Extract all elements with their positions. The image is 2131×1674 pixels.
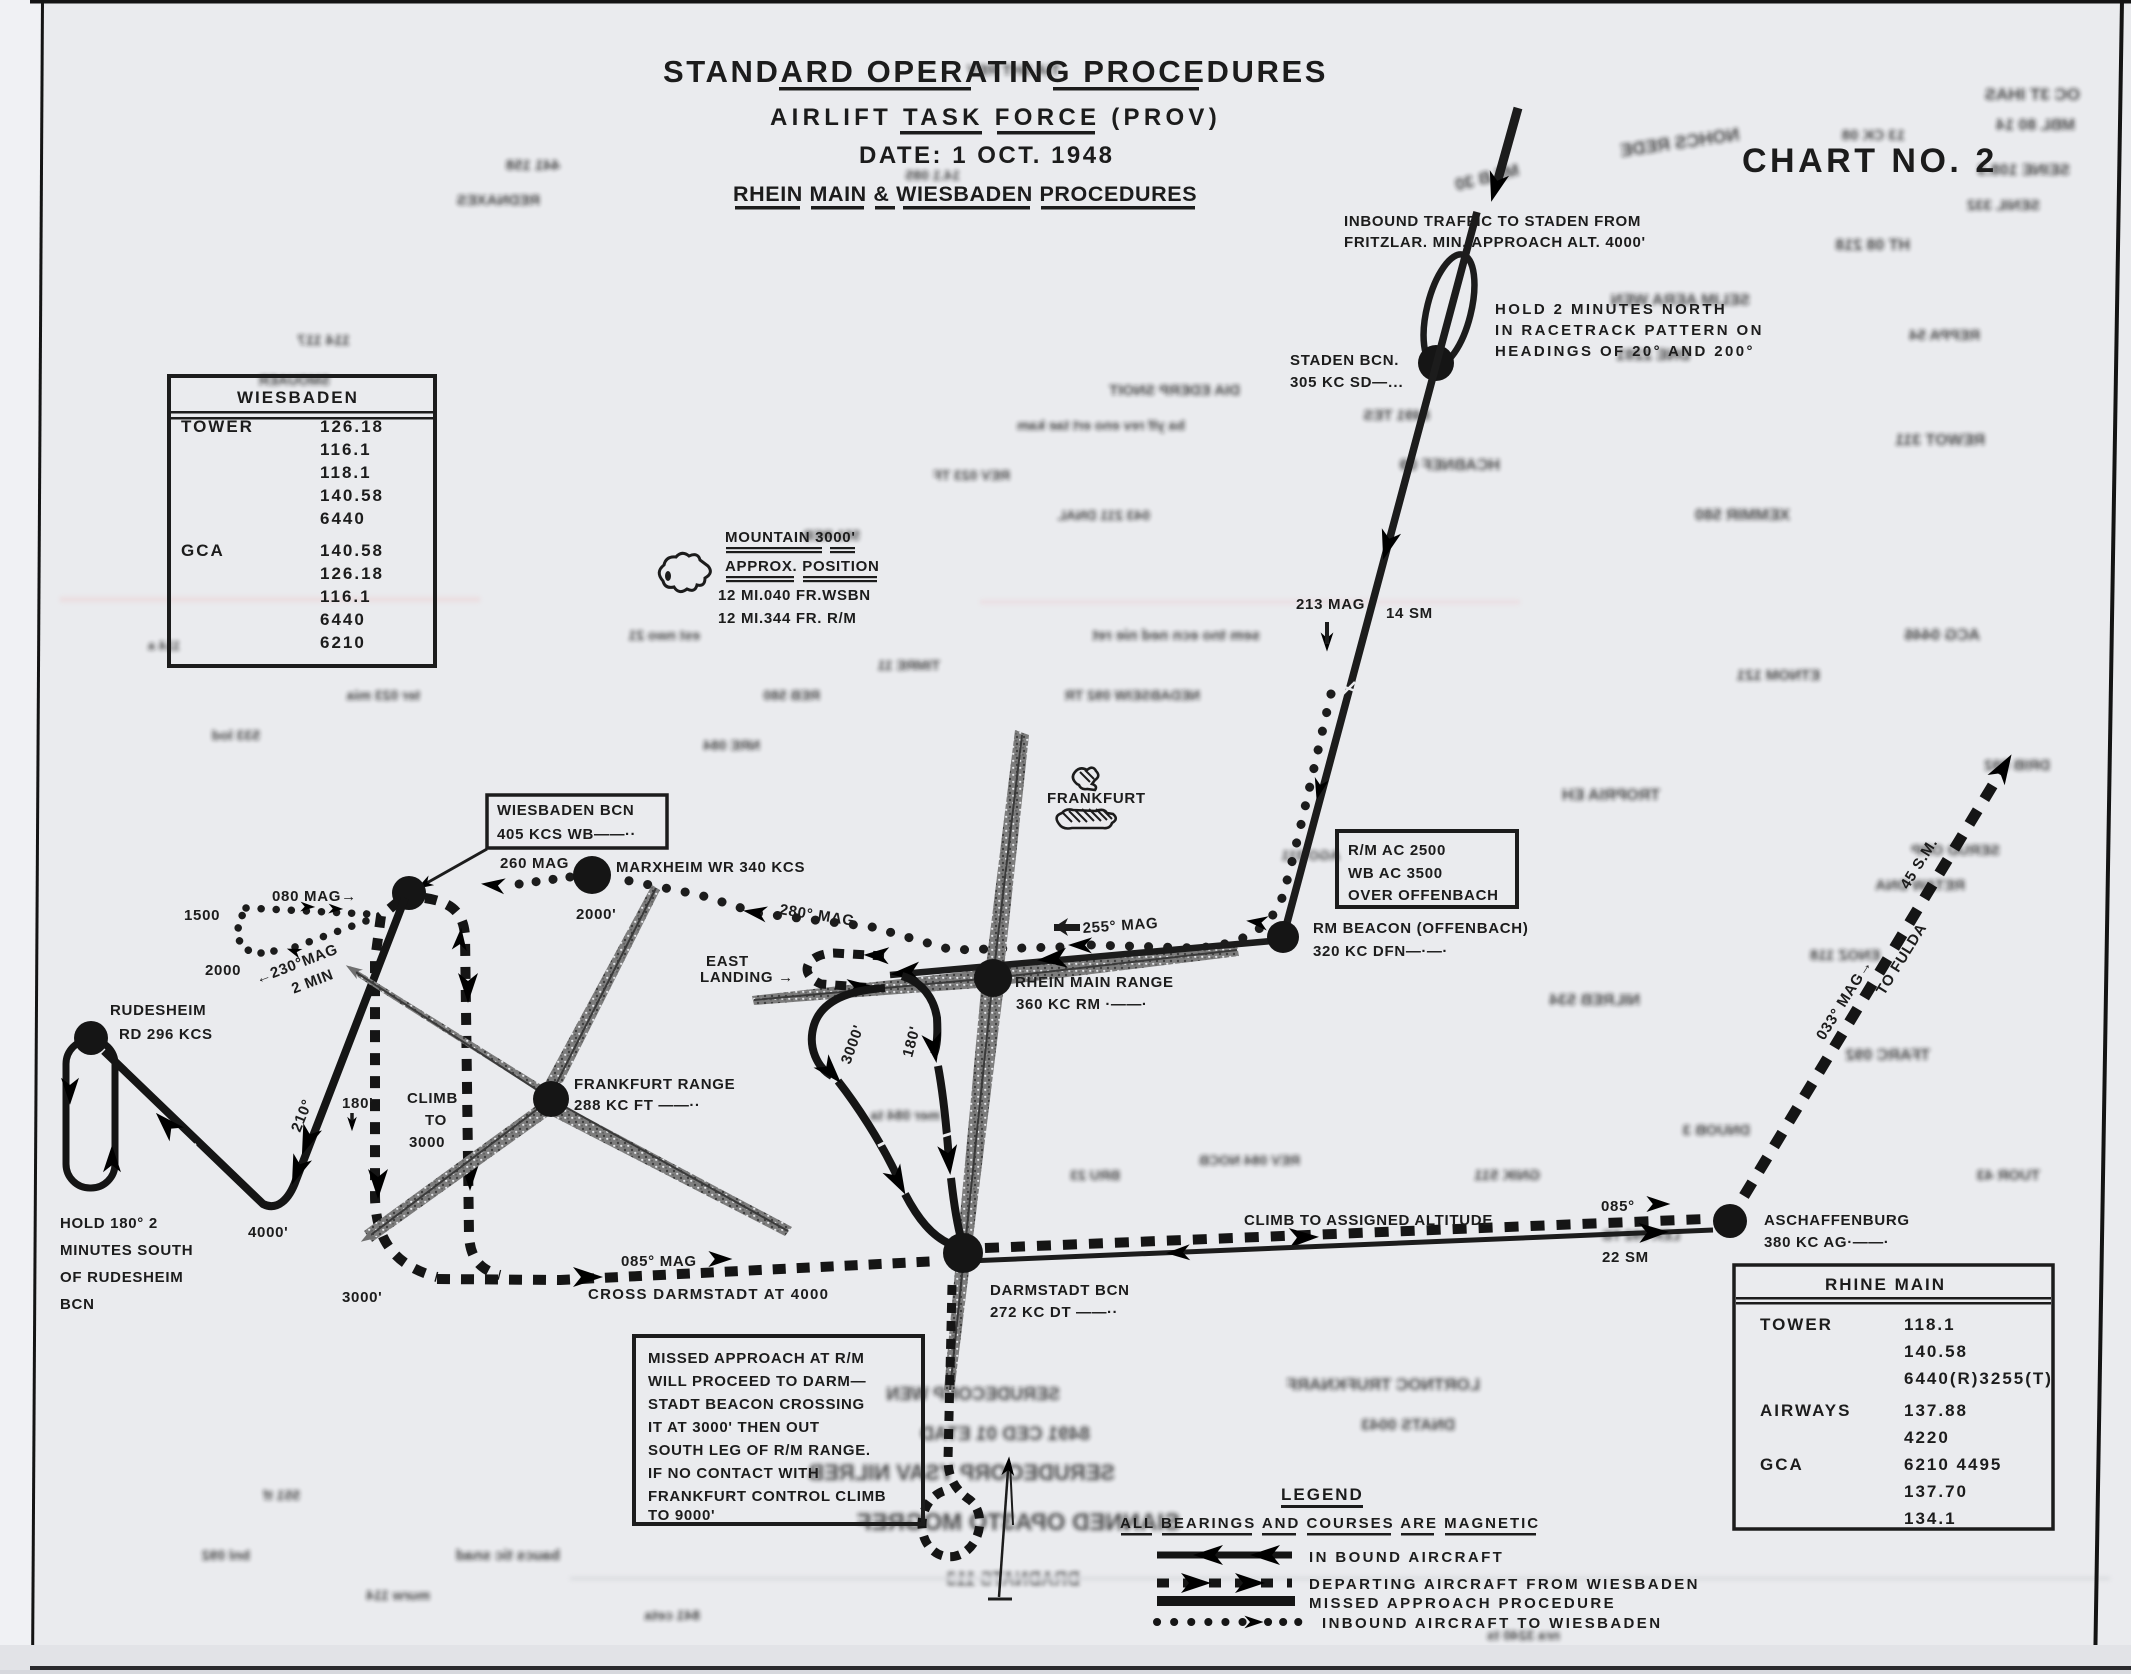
svg-text:6440: 6440	[320, 509, 366, 528]
svg-text:305 KC SD—...: 305 KC SD—...	[1290, 374, 1404, 391]
svg-text:140.58: 140.58	[320, 486, 384, 505]
svg-text:134.1: 134.1	[1904, 1509, 1957, 1528]
svg-text:TO 9000': TO 9000'	[648, 1507, 715, 1524]
svg-text:DIA EDERP SNOIT: DIA EDERP SNOIT	[1109, 382, 1240, 399]
svg-text:BRU 23: BRU 23	[1070, 1167, 1120, 1183]
svg-text:FRITZLAR. MIN. APPROACH ALT. 4: FRITZLAR. MIN. APPROACH ALT. 4000'	[1344, 234, 1646, 251]
svg-text:est nwo 21: est nwo 21	[628, 627, 700, 643]
svg-text:12 MI.344 FR. R/M: 12 MI.344 FR. R/M	[718, 610, 857, 627]
svg-text:CHART NO. 2: CHART NO. 2	[1742, 142, 1998, 180]
svg-text:IT AT 3000' THEN OUT: IT AT 3000' THEN OUT	[648, 1419, 820, 1436]
svg-text:mer 084 ta: mer 084 ta	[871, 1107, 940, 1123]
svg-text:6440: 6440	[320, 610, 366, 629]
svg-text:140.58: 140.58	[320, 541, 384, 560]
svg-text:TUOR 43: TUOR 43	[1977, 1167, 2040, 1184]
svg-text:6210: 6210	[320, 633, 366, 652]
svg-text:3000: 3000	[409, 1134, 445, 1151]
svg-text:126.18: 126.18	[320, 564, 384, 583]
svg-text:OC 3T IHAS: OC 3T IHAS	[1985, 85, 2080, 104]
svg-text:GNIK 511: GNIK 511	[1474, 1167, 1540, 1184]
svg-text:114 117: 114 117	[297, 332, 350, 349]
svg-text:AIRWAYS: AIRWAYS	[1760, 1401, 1851, 1420]
svg-text:baucs tic snad: baucs tic snad	[456, 1547, 560, 1564]
svg-text:MINUTES SOUTH: MINUTES SOUTH	[60, 1242, 193, 1259]
svg-text:DARMSTADT BCN: DARMSTADT BCN	[990, 1282, 1130, 1299]
svg-text:IF NO CONTACT WITH: IF NO CONTACT WITH	[648, 1465, 819, 1482]
svg-text:DEPARTING AIRCRAFT FROM WIESBA: DEPARTING AIRCRAFT FROM WIESBADEN	[1309, 1576, 1700, 1593]
svg-text:STADT BEACON CROSSING: STADT BEACON CROSSING	[648, 1396, 865, 1413]
svg-text:REWOT 311: REWOT 311	[1895, 432, 1985, 449]
svg-text:TROPRIA EH: TROPRIA EH	[1562, 787, 1660, 804]
svg-text:ENOZ 118: ENOZ 118	[1810, 947, 1880, 964]
svg-text:RUDESHEIM: RUDESHEIM	[110, 1002, 206, 1019]
svg-text:118.1: 118.1	[320, 463, 372, 482]
svg-text:TIMRE 11: TIMRE 11	[878, 657, 940, 673]
svg-text:TO: TO	[425, 1112, 447, 1129]
svg-text:DATE: 1 OCT. 1948: DATE: 1 OCT. 1948	[859, 142, 1114, 169]
svg-text:XEMMIR 580: XEMMIR 580	[1695, 507, 1790, 524]
svg-text:R/M AC 2500: R/M AC 2500	[1348, 842, 1446, 859]
svg-text:260 MAG: 260 MAG	[500, 855, 569, 872]
svg-text:STANDARD OPERATING PROCEDURES: STANDARD OPERATING PROCEDURES	[663, 54, 1328, 89]
svg-text:TFARC 092: TFARC 092	[1845, 1047, 1930, 1064]
svg-text:DNATS 0043: DNATS 0043	[1361, 1417, 1455, 1434]
svg-text:CROSS DARMSTADT AT 4000: CROSS DARMSTADT AT 4000	[588, 1286, 829, 1303]
svg-text:STADEN BCN.: STADEN BCN.	[1290, 352, 1399, 369]
svg-text:IN RACETRACK PATTERN ON: IN RACETRACK PATTERN ON	[1495, 322, 1764, 339]
svg-text:LANDING →: LANDING →	[700, 969, 794, 986]
svg-text:2000: 2000	[205, 962, 241, 979]
svg-text:HEADINGS OF 20° AND 200°: HEADINGS OF 20° AND 200°	[1495, 343, 1755, 360]
svg-text:288 KC FT ——··: 288 KC FT ——··	[574, 1097, 700, 1114]
svg-text:126.18: 126.18	[320, 417, 384, 436]
svg-text:MISSED APPROACH PROCEDURE: MISSED APPROACH PROCEDURE	[1309, 1595, 1616, 1612]
svg-text:14.1 085: 14.1 085	[905, 167, 960, 183]
svg-text:ACG 0446: ACG 0446	[1904, 627, 1980, 644]
svg-text:SOUTH LEG OF R/M RANGE.: SOUTH LEG OF R/M RANGE.	[648, 1442, 871, 1459]
svg-text:REB 580: REB 580	[763, 687, 820, 703]
svg-text:murw 114: murw 114	[366, 1587, 430, 1603]
svg-text:HT 08 218: HT 08 218	[1835, 237, 1910, 254]
svg-text:085°: 085°	[1601, 1198, 1635, 1215]
svg-text:405 KCS WB——··: 405 KCS WB——··	[497, 826, 636, 843]
svg-text:sem tno ecn ned nie ret: sem tno ecn ned nie ret	[1092, 627, 1260, 644]
svg-text:441 158: 441 158	[506, 157, 560, 174]
svg-text:1500: 1500	[184, 907, 220, 924]
svg-text:NILREB 534: NILREB 534	[1549, 992, 1640, 1009]
svg-text:ETNOM 121: ETNOM 121	[1737, 667, 1820, 684]
svg-text:GCA: GCA	[181, 541, 225, 560]
svg-text:TOWER: TOWER	[181, 417, 254, 436]
svg-text:14 SM: 14 SM	[1386, 605, 1433, 622]
svg-text:SENIL 332: SENIL 332	[1967, 197, 2040, 214]
svg-text:APPROX. POSITION: APPROX. POSITION	[725, 558, 880, 575]
svg-text:213 MAG: 213 MAG	[1296, 596, 1365, 613]
svg-text:4220: 4220	[1904, 1428, 1950, 1447]
svg-text:FRANKFURT CONTROL CLIMB: FRANKFURT CONTROL CLIMB	[648, 1488, 886, 1505]
svg-text:4000': 4000'	[248, 1224, 288, 1241]
svg-text:180': 180'	[342, 1095, 373, 1112]
svg-text:INBOUND AIRCRAFT TO WIESBADEN: INBOUND AIRCRAFT TO WIESBADEN	[1322, 1615, 1662, 1632]
svg-text:TOWER: TOWER	[1760, 1315, 1833, 1334]
svg-text:CLIMB: CLIMB	[407, 1090, 458, 1107]
svg-text:272 KC DT ——··: 272 KC DT ——··	[990, 1304, 1118, 1321]
svg-text:BCN: BCN	[60, 1296, 95, 1313]
svg-text:GCA: GCA	[1760, 1455, 1804, 1474]
svg-text:320 KC DFN—·—·: 320 KC DFN—·—·	[1313, 943, 1448, 960]
svg-text:ba ylf rev eno ert tae kam: ba ylf rev eno ert tae kam	[1017, 417, 1185, 433]
svg-text:841 ceta: 841 ceta	[645, 1607, 700, 1623]
svg-text:OF RUDESHEIM: OF RUDESHEIM	[60, 1269, 183, 1286]
svg-text:HOLD 180° 2: HOLD 180° 2	[60, 1215, 158, 1232]
svg-text:WB AC 3500: WB AC 3500	[1348, 865, 1443, 882]
svg-text:MBL 80 14: MBL 80 14	[1996, 117, 2075, 134]
svg-text:WILL PROCEED TO DARM—: WILL PROCEED TO DARM—	[648, 1373, 866, 1390]
svg-text:HOLD 2 MINUTES NORTH: HOLD 2 MINUTES NORTH	[1495, 301, 1727, 318]
svg-text:RHINE MAIN: RHINE MAIN	[1825, 1275, 1946, 1294]
svg-text:MISSED APPROACH AT R/M: MISSED APPROACH AT R/M	[648, 1350, 865, 1367]
svg-text:IN BOUND AIRCRAFT: IN BOUND AIRCRAFT	[1309, 1549, 1504, 1566]
svg-text:118.1: 118.1	[1904, 1315, 1956, 1334]
svg-text:116.1: 116.1	[320, 440, 372, 459]
svg-text:FRANKFURT RANGE: FRANKFURT RANGE	[574, 1076, 735, 1093]
svg-text:22 SM: 22 SM	[1602, 1249, 1649, 1266]
svg-text:360 KC RM ·——·: 360 KC RM ·——·	[1016, 996, 1147, 1013]
svg-text:533 lod: 533 lod	[212, 727, 260, 743]
svg-text:OVER OFFENBACH: OVER OFFENBACH	[1348, 887, 1499, 904]
svg-text:551 tf: 551 tf	[263, 1487, 300, 1503]
svg-text:LEGEND: LEGEND	[1281, 1485, 1364, 1504]
svg-text:MOUNTAIN 3000': MOUNTAIN 3000'	[725, 529, 856, 546]
svg-text:ALL BEARINGS AND COURSES ARE M: ALL BEARINGS AND COURSES ARE MAGNETIC	[1120, 1515, 1540, 1532]
svg-text:REV 084 NOCB: REV 084 NOCB	[1199, 1152, 1300, 1168]
svg-text:3000': 3000'	[342, 1289, 382, 1306]
svg-text:085° MAG: 085° MAG	[621, 1253, 697, 1270]
svg-text:12 MI.040 FR.WSBN: 12 MI.040 FR.WSBN	[718, 587, 871, 604]
svg-text:EAST: EAST	[706, 953, 749, 970]
svg-text:REPPA 54: REPPA 54	[1908, 327, 1980, 344]
svg-text:INBOUND TRAFFIC TO STADEN FROM: INBOUND TRAFFIC TO STADEN FROM	[1344, 213, 1641, 230]
svg-text:LORTNOC TRUFKNARF: LORTNOC TRUFKNARF	[1286, 1375, 1480, 1394]
svg-text:NRE 084: NRE 084	[703, 737, 760, 753]
svg-text:6210 4495: 6210 4495	[1904, 1455, 2002, 1474]
svg-text:380 KC AG·——·: 380 KC AG·——·	[1764, 1234, 1889, 1251]
svg-text:CLIMB TO ASSIGNED ALTITUDE: CLIMB TO ASSIGNED ALTITUDE	[1244, 1212, 1493, 1229]
svg-text:6440(R)3255(T): 6440(R)3255(T)	[1904, 1369, 2053, 1388]
svg-text:080 MAG→: 080 MAG→	[272, 888, 357, 905]
svg-text:RD 296 KCS: RD 296 KCS	[119, 1026, 213, 1043]
svg-text:ter 023 mia: ter 023 mia	[347, 687, 420, 703]
svg-text:140.58: 140.58	[1904, 1342, 1968, 1361]
svg-text:2000': 2000'	[576, 906, 616, 923]
svg-text:137.70: 137.70	[1904, 1482, 1968, 1501]
svg-text:RETAW DNA: RETAW DNA	[1875, 877, 1965, 894]
svg-text:MARXHEIM WR 340 KCS: MARXHEIM WR 340 KCS	[616, 859, 805, 876]
svg-text:REV 023 TF: REV 023 TF	[933, 467, 1010, 483]
svg-text:AIRLIFT TASK FORCE (PROV): AIRLIFT TASK FORCE (PROV)	[770, 104, 1221, 131]
svg-text:RHEIN MAIN & WIESBADEN PROCEDU: RHEIN MAIN & WIESBADEN PROCEDURES	[733, 182, 1197, 206]
svg-text:DNUOB 3: DNUOB 3	[1682, 1122, 1750, 1139]
svg-text:WIESBADEN: WIESBADEN	[237, 388, 359, 407]
svg-text:RHEIN MAIN RANGE: RHEIN MAIN RANGE	[1015, 974, 1174, 991]
svg-text:ASCHAFFENBURG: ASCHAFFENBURG	[1764, 1212, 1910, 1229]
svg-text:NEDABSEIW 092 TR: NEDABSEIW 092 TR	[1065, 687, 1200, 703]
svg-text:SERUDECORP YSAV NILREB: SERUDECORP YSAV NILREB	[808, 1460, 1115, 1485]
svg-text:WIESBADEN BCN: WIESBADEN BCN	[497, 802, 634, 819]
svg-text:137.88: 137.88	[1904, 1401, 1968, 1420]
svg-text:bnl 092: bnl 092	[202, 1547, 250, 1563]
svg-text:043 211 DNAL: 043 211 DNAL	[1057, 507, 1150, 523]
svg-text:REDNAXES: REDNAXES	[457, 192, 540, 209]
svg-text:116.1: 116.1	[320, 587, 372, 606]
svg-text:RM BEACON (OFFENBACH): RM BEACON (OFFENBACH)	[1313, 920, 1529, 937]
svg-text:114 a: 114 a	[147, 638, 180, 653]
svg-text:SERUDECORP WEN: SERUDECORP WEN	[886, 1384, 1060, 1404]
svg-text:FRANKFURT: FRANKFURT	[1047, 790, 1146, 807]
